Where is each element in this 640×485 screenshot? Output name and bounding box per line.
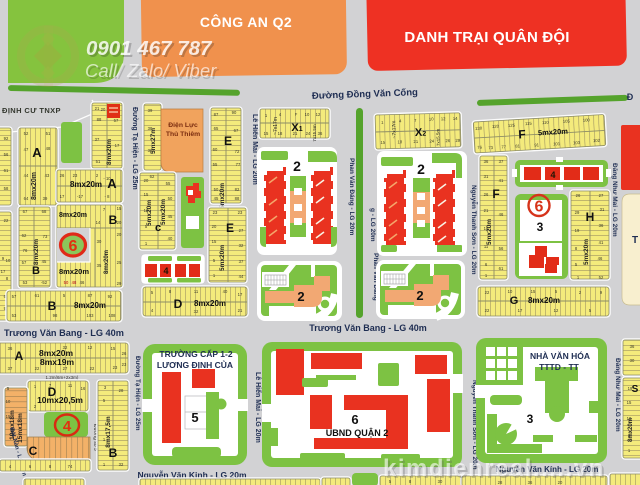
svg-text:46: 46 <box>598 256 603 261</box>
svg-text:32: 32 <box>63 345 68 350</box>
svg-text:26: 26 <box>60 173 65 178</box>
svg-text:12: 12 <box>88 345 93 350</box>
svg-text:44: 44 <box>24 173 29 178</box>
svg-text:22: 22 <box>35 366 40 371</box>
svg-text:36: 36 <box>148 148 153 153</box>
svg-text:21: 21 <box>413 139 418 144</box>
svg-text:g - LG 20m: g - LG 20m <box>369 208 376 242</box>
svg-text:74: 74 <box>68 464 73 469</box>
svg-text:38: 38 <box>148 126 153 131</box>
svg-text:8mx19m: 8mx19m <box>40 357 74 367</box>
svg-text:62: 62 <box>22 233 27 238</box>
svg-text:10: 10 <box>305 112 310 117</box>
svg-text:41: 41 <box>599 240 604 245</box>
svg-text:46: 46 <box>499 212 504 217</box>
svg-text:31: 31 <box>484 174 489 179</box>
svg-text:8mx20m: 8mx20m <box>31 172 38 200</box>
svg-text:Thủ Thiêm: Thủ Thiêm <box>166 131 200 138</box>
svg-text:36: 36 <box>630 344 635 349</box>
svg-text:2: 2 <box>416 288 423 303</box>
svg-text:Đường Tạ Hiện - LG 25m: Đường Tạ Hiện - LG 25m <box>131 107 138 190</box>
svg-text:0901 467 787: 0901 467 787 <box>86 37 213 60</box>
svg-text:8mx17,5m: 8mx17,5m <box>105 416 112 448</box>
svg-text:26: 26 <box>576 193 581 198</box>
svg-text:21: 21 <box>238 308 243 313</box>
svg-text:48: 48 <box>46 146 51 151</box>
svg-text:15: 15 <box>380 140 385 145</box>
svg-text:21: 21 <box>293 131 298 136</box>
svg-text:18: 18 <box>278 131 283 136</box>
svg-text:-52: -52 <box>41 280 48 285</box>
svg-text:E: E <box>226 221 234 235</box>
svg-text:22: 22 <box>4 218 9 223</box>
svg-text:24: 24 <box>306 131 311 136</box>
svg-text:12: 12 <box>441 116 446 121</box>
svg-text:17: 17 <box>1 269 6 274</box>
svg-text:8mx20m: 8mx20m <box>59 212 87 219</box>
svg-text:14: 14 <box>96 220 101 225</box>
svg-text:F: F <box>492 187 499 201</box>
svg-text:3: 3 <box>537 220 544 234</box>
svg-text:77: 77 <box>236 162 241 167</box>
svg-text:30: 30 <box>630 358 635 363</box>
svg-text:Lê Hiến Mai - LG 20m: Lê Hiến Mai - LG 20m <box>254 372 262 443</box>
svg-text:56: 56 <box>4 152 9 157</box>
svg-text:87: 87 <box>214 112 219 117</box>
svg-text:72: 72 <box>235 149 240 154</box>
svg-text:4: 4 <box>163 266 168 276</box>
svg-text:43: 43 <box>45 173 50 178</box>
svg-text:20: 20 <box>144 178 149 183</box>
svg-text:Trương Văn Bang - LG 40m: Trương Văn Bang - LG 40m <box>309 323 426 333</box>
svg-text:45: 45 <box>168 214 173 219</box>
svg-text:ĐỊNH CƯ TNXP: ĐỊNH CƯ TNXP <box>2 106 61 115</box>
svg-text:100: 100 <box>583 117 591 122</box>
svg-text:50: 50 <box>214 187 219 192</box>
svg-text:27: 27 <box>599 193 604 198</box>
svg-text:11: 11 <box>484 244 489 249</box>
svg-text:47: 47 <box>24 147 29 152</box>
svg-text:Đ: Đ <box>627 92 634 102</box>
svg-text:52: 52 <box>24 131 29 136</box>
svg-text:21: 21 <box>484 208 489 213</box>
svg-text:Điện Lực: Điện Lực <box>168 122 198 129</box>
svg-text:44: 44 <box>239 274 244 279</box>
svg-text:51: 51 <box>96 159 101 164</box>
svg-text:92: 92 <box>4 136 9 141</box>
svg-text:17: 17 <box>60 194 65 199</box>
svg-text:11: 11 <box>68 383 73 388</box>
svg-text:4: 4 <box>550 170 555 180</box>
svg-text:68: 68 <box>42 209 47 214</box>
svg-text:57: 57 <box>114 118 119 123</box>
svg-text:4: 4 <box>63 418 72 435</box>
svg-text:~7x17m: ~7x17m <box>391 120 397 138</box>
svg-text:17: 17 <box>115 143 120 148</box>
svg-text:26: 26 <box>122 351 127 356</box>
svg-text:23: 23 <box>238 210 243 215</box>
svg-text:F: F <box>518 127 526 141</box>
svg-text:57: 57 <box>12 294 17 299</box>
svg-text:NHÀ VĂN HÓA: NHÀ VĂN HÓA <box>530 350 590 361</box>
svg-text:10: 10 <box>6 399 11 404</box>
svg-text:DANH TRẠI QUÂN ĐỘI: DANH TRẠI QUÂN ĐỘI <box>404 28 569 46</box>
svg-text:15: 15 <box>531 289 536 294</box>
svg-text:A: A <box>15 349 24 363</box>
svg-text:F: F <box>295 112 298 117</box>
svg-text:39: 39 <box>148 108 153 113</box>
svg-text:22: 22 <box>485 308 490 313</box>
svg-text:88: 88 <box>97 117 102 122</box>
svg-text:87: 87 <box>88 293 93 298</box>
svg-text:5: 5 <box>191 410 198 425</box>
svg-text:12: 12 <box>316 112 321 117</box>
svg-text:60: 60 <box>213 147 218 152</box>
svg-text:27: 27 <box>239 228 244 233</box>
svg-text:98: 98 <box>53 313 58 318</box>
svg-text:36: 36 <box>599 223 604 228</box>
svg-text:5mx20m: 5mx20m <box>219 183 226 209</box>
svg-text:37: 37 <box>499 159 504 164</box>
svg-text:8mx20m: 8mx20m <box>104 250 110 274</box>
svg-text:15: 15 <box>212 239 217 244</box>
svg-text:103: 103 <box>87 313 95 318</box>
svg-text:3: 3 <box>527 412 534 426</box>
svg-text:15: 15 <box>117 206 122 211</box>
svg-text:19: 19 <box>575 228 580 233</box>
svg-text:88: 88 <box>235 196 240 201</box>
svg-text:27: 27 <box>63 366 68 371</box>
svg-text:61: 61 <box>35 293 40 298</box>
svg-text:39: 39 <box>43 196 48 201</box>
svg-text:H: H <box>586 210 595 224</box>
svg-text:35: 35 <box>97 263 102 268</box>
svg-text:26: 26 <box>445 138 450 143</box>
svg-text:Đăng Như Mai - LG 20m: Đăng Như Mai - LG 20m <box>611 163 618 237</box>
svg-text:8mx20m: 8mx20m <box>70 180 102 189</box>
svg-text:6: 6 <box>69 238 78 255</box>
svg-text:5mx20m: 5mx20m <box>538 127 569 138</box>
svg-text:31: 31 <box>600 207 605 212</box>
svg-text:130: 130 <box>475 126 483 131</box>
svg-text:51: 51 <box>46 131 51 136</box>
svg-text:12: 12 <box>554 308 559 313</box>
svg-text:19: 19 <box>628 386 633 391</box>
svg-text:55: 55 <box>166 181 171 186</box>
svg-text:8mx20m: 8mx20m <box>106 139 113 165</box>
svg-text:53: 53 <box>12 313 17 318</box>
svg-text:Phan Văn Đáng - LG 20m: Phan Văn Đáng - LG 20m <box>348 158 355 236</box>
svg-text:125: 125 <box>508 123 516 128</box>
svg-text:64: 64 <box>24 196 29 201</box>
svg-text:17: 17 <box>518 308 523 313</box>
svg-text:20: 20 <box>101 107 106 112</box>
svg-text:UBND QUẬN 2: UBND QUẬN 2 <box>326 427 389 438</box>
svg-text:A: A <box>32 145 42 160</box>
svg-text:D: D <box>174 297 183 311</box>
svg-text:10: 10 <box>627 416 632 421</box>
svg-text:24: 24 <box>429 138 434 143</box>
svg-text:10: 10 <box>144 208 149 213</box>
svg-text:50: 50 <box>64 280 69 285</box>
svg-text:15: 15 <box>111 346 116 351</box>
svg-text:61: 61 <box>499 266 504 271</box>
svg-text:kimdienreal.....vn: kimdienreal.....vn <box>383 455 605 482</box>
svg-text:15: 15 <box>6 414 11 419</box>
svg-text:36: 36 <box>8 346 13 351</box>
svg-text:37: 37 <box>8 366 13 371</box>
svg-text:5mx20m: 5mx20m <box>583 239 590 265</box>
svg-text:15mx18m: 15mx18m <box>17 413 24 443</box>
svg-text:55: 55 <box>213 162 218 167</box>
svg-text:E: E <box>224 134 232 148</box>
svg-text:26: 26 <box>484 192 489 197</box>
svg-text:41: 41 <box>499 178 504 183</box>
svg-text:105: 105 <box>563 118 571 123</box>
svg-text:2: 2 <box>417 161 425 177</box>
svg-text:29: 29 <box>575 210 580 215</box>
svg-text:5mx20m: 5mx20m <box>486 219 493 245</box>
svg-text:23: 23 <box>73 173 78 178</box>
svg-text:8mx20m: 8mx20m <box>59 267 89 276</box>
svg-text:6: 6 <box>351 412 358 427</box>
svg-text:101: 101 <box>553 141 561 146</box>
svg-text:67: 67 <box>23 209 28 214</box>
svg-text:8mx20m: 8mx20m <box>74 301 106 310</box>
svg-text:103: 103 <box>573 140 581 145</box>
svg-text:82: 82 <box>235 187 240 192</box>
svg-text:16: 16 <box>81 386 86 391</box>
svg-text:C: C <box>29 444 38 458</box>
svg-text:58: 58 <box>4 186 9 191</box>
svg-text:67: 67 <box>234 128 239 133</box>
svg-text:37: 37 <box>239 259 244 264</box>
svg-text:32: 32 <box>119 462 124 467</box>
svg-text:Đường Tạ Hiện - LG 25m: Đường Tạ Hiện - LG 25m <box>134 356 141 431</box>
svg-text:25: 25 <box>117 260 122 265</box>
svg-text:61: 61 <box>4 168 9 173</box>
svg-text:57: 57 <box>22 260 27 265</box>
svg-text:32: 32 <box>239 243 244 248</box>
svg-text:65: 65 <box>214 126 219 131</box>
svg-text:11: 11 <box>194 289 199 294</box>
svg-text:73: 73 <box>43 234 48 239</box>
svg-text:8mx20m: 8mx20m <box>194 299 226 308</box>
svg-text:76: 76 <box>23 248 28 253</box>
svg-text:B: B <box>48 299 57 313</box>
svg-text:LƯƠNG ĐỊNH CỦA: LƯƠNG ĐỊNH CỦA <box>157 359 233 370</box>
svg-text:53: 53 <box>23 280 28 285</box>
svg-text:8mx20m: 8mx20m <box>528 296 560 305</box>
svg-text:7x15.5m: 7x15.5m <box>312 124 317 142</box>
svg-text:28: 28 <box>455 138 460 143</box>
svg-text:15: 15 <box>627 400 632 405</box>
svg-text:10: 10 <box>429 116 434 121</box>
svg-text:21: 21 <box>95 106 100 111</box>
svg-text:c: c <box>155 222 161 234</box>
svg-text:20: 20 <box>117 220 122 225</box>
svg-text:62: 62 <box>150 174 155 179</box>
svg-text:6: 6 <box>535 199 544 216</box>
svg-text:-17: -17 <box>77 194 84 199</box>
svg-text:50: 50 <box>168 196 173 201</box>
svg-text:10: 10 <box>6 258 11 263</box>
svg-text:52: 52 <box>599 275 604 280</box>
svg-text:108: 108 <box>109 313 117 318</box>
svg-text:32: 32 <box>194 309 199 314</box>
svg-text:20: 20 <box>212 224 217 229</box>
svg-text:16: 16 <box>484 226 489 231</box>
svg-text:45: 45 <box>42 259 47 264</box>
svg-text:92: 92 <box>108 294 113 299</box>
svg-text:23: 23 <box>113 365 118 370</box>
svg-text:2: 2 <box>293 158 301 174</box>
svg-text:15: 15 <box>264 131 269 136</box>
svg-text:TRƯỜNG CẤP 1-2: TRƯỜNG CẤP 1-2 <box>159 348 232 359</box>
svg-text:B: B <box>32 265 40 277</box>
svg-text:90: 90 <box>232 110 237 115</box>
svg-text:30: 30 <box>97 239 102 244</box>
svg-text:40: 40 <box>223 289 228 294</box>
svg-text:Đăng Như Mai - LG 20m: Đăng Như Mai - LG 20m <box>614 358 621 432</box>
svg-text:G: G <box>510 295 519 307</box>
svg-text:40: 40 <box>168 236 173 241</box>
svg-text:10mx20,5m: 10mx20,5m <box>37 395 83 405</box>
svg-text:Nguyễn Thanh Sơn - LG 20m: Nguyễn Thanh Sơn - LG 20m <box>470 185 479 275</box>
svg-text:102: 102 <box>593 138 601 143</box>
svg-text:CÔNG AN Q2: CÔNG AN Q2 <box>200 13 292 30</box>
svg-text:23: 23 <box>213 210 218 215</box>
svg-text:15: 15 <box>144 192 149 197</box>
svg-text:48: 48 <box>72 280 77 285</box>
svg-text:Call/ Zalo/ Viber: Call/ Zalo/ Viber <box>85 60 217 81</box>
svg-text:115: 115 <box>525 121 533 126</box>
svg-text:S: S <box>632 384 639 395</box>
svg-text:29: 29 <box>117 281 122 286</box>
svg-text:36: 36 <box>484 159 489 164</box>
svg-text:120: 120 <box>492 124 500 129</box>
svg-text:45: 45 <box>214 196 219 201</box>
svg-text:Trương Văn Bang - LG 40m: Trương Văn Bang - LG 40m <box>4 328 124 338</box>
svg-text:8mx20m: 8mx20m <box>33 239 40 265</box>
svg-text:10: 10 <box>508 289 513 294</box>
svg-text:14: 14 <box>453 116 458 121</box>
svg-text:56: 56 <box>499 246 504 251</box>
svg-text:18: 18 <box>397 139 402 144</box>
svg-text:46: 46 <box>80 280 85 285</box>
svg-text:37: 37 <box>95 137 100 142</box>
svg-text:28: 28 <box>119 388 124 393</box>
svg-text:2: 2 <box>297 289 304 304</box>
svg-text:22: 22 <box>485 290 490 295</box>
svg-text:- 10: - 10 <box>103 176 111 181</box>
svg-text:110: 110 <box>542 120 550 125</box>
svg-text:20: 20 <box>117 232 122 237</box>
svg-text:22: 22 <box>90 366 95 371</box>
svg-text:TTTD - TT: TTTD - TT <box>539 362 579 372</box>
svg-text:23: 23 <box>122 362 127 367</box>
svg-text:7x15.5m: 7x15.5m <box>435 128 440 146</box>
svg-text:- 8: - 8 <box>105 194 111 199</box>
svg-text:17: 17 <box>238 292 243 297</box>
svg-text:5mx20m: 5mx20m <box>219 245 226 271</box>
svg-text:T: T <box>632 235 638 246</box>
svg-text:36: 36 <box>318 131 323 136</box>
